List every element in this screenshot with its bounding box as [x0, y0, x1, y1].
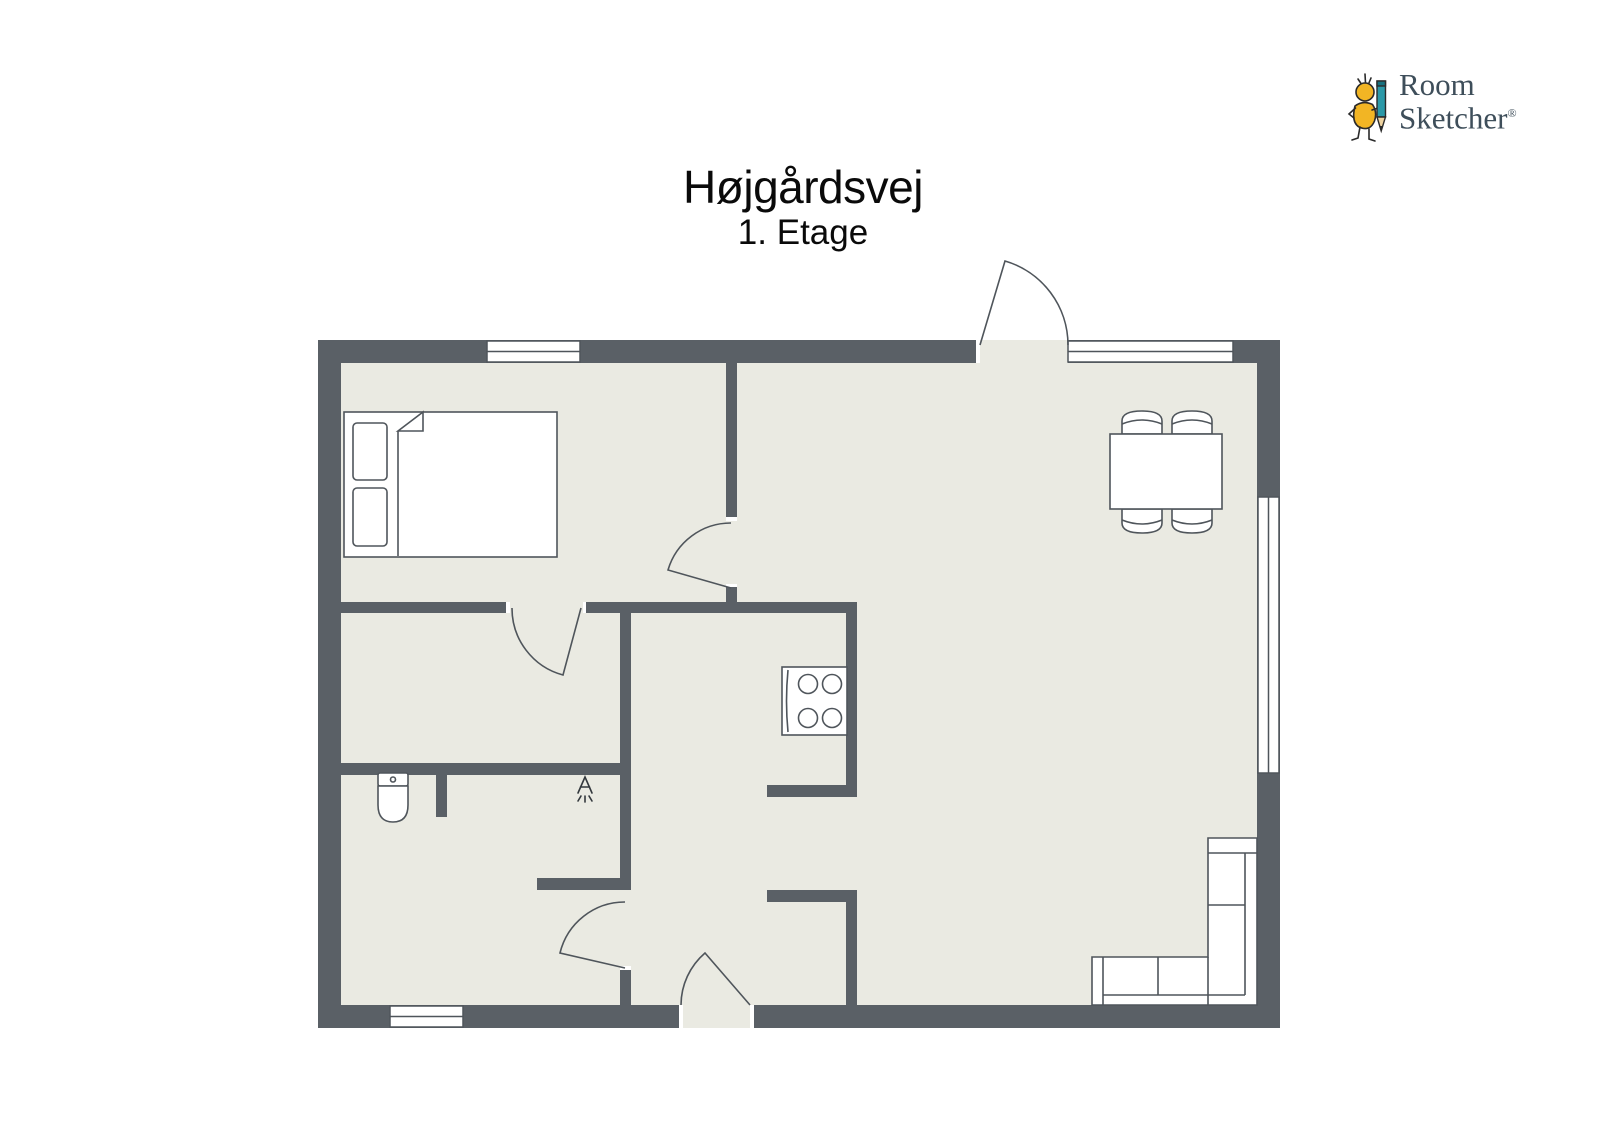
floor-plan-drawing — [0, 0, 1600, 1131]
toilet — [378, 773, 408, 822]
window-top-bedroom — [487, 341, 580, 362]
window-right-living — [1258, 497, 1279, 773]
chair — [1122, 411, 1162, 434]
pillow — [353, 488, 387, 546]
double-bed — [344, 412, 557, 557]
pillow — [353, 423, 387, 480]
window-bottom-bathroom — [390, 1006, 463, 1027]
stove — [782, 667, 847, 735]
dining-table — [1110, 434, 1222, 509]
chair — [1122, 509, 1162, 533]
chair — [1172, 411, 1212, 434]
window-top-living — [1068, 341, 1233, 362]
floorplan-page: Højgårdsvej 1. Etage Room — [0, 0, 1600, 1131]
door-main-entrance — [980, 261, 1068, 345]
chair — [1172, 509, 1212, 533]
